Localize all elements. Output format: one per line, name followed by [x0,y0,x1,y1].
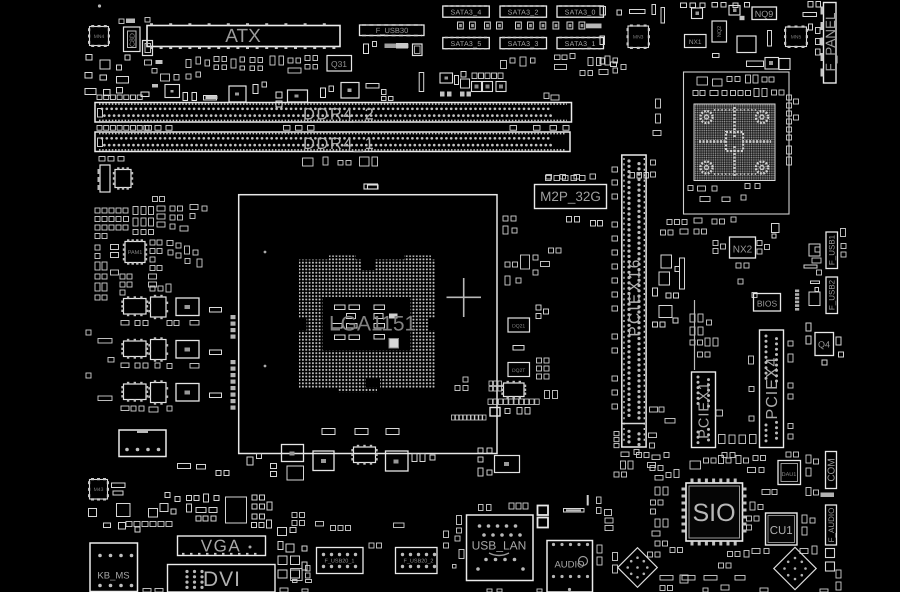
svg-text:Q31: Q31 [331,59,347,69]
svg-text:SIO: SIO [692,499,735,527]
svg-text:DAU1: DAU1 [782,472,797,478]
svg-text:NQ2: NQ2 [717,26,723,37]
svg-text:PCIEX4: PCIEX4 [764,357,781,420]
svg-text:NX2: NX2 [733,245,753,256]
svg-text:DQ2T: DQ2T [512,368,525,374]
svg-text:SATA3_1: SATA3_1 [565,41,596,48]
svg-text:M2P_32G: M2P_32G [540,189,601,204]
svg-text:Q4: Q4 [818,340,830,350]
svg-text:PCIEX16: PCIEX16 [627,257,644,336]
svg-text:F_USB30: F_USB30 [376,26,409,35]
svg-text:USB_LAN: USB_LAN [472,539,527,553]
svg-text:DDR4_1: DDR4_1 [303,135,375,153]
svg-text:F_USB20_2: F_USB20_2 [404,559,434,565]
svg-text:F_USB2: F_USB2 [827,279,836,310]
svg-text:F_AUDIO: F_AUDIO [827,508,836,543]
svg-text:SATA3_2: SATA3_2 [508,10,539,17]
svg-text:M43: M43 [94,487,104,493]
svg-text:SATA3_0: SATA3_0 [565,10,596,17]
svg-text:LGA1151: LGA1151 [329,313,416,336]
svg-text:SATA3_5: SATA3_5 [450,41,481,48]
svg-text:PAM1: PAM1 [128,250,143,256]
svg-text:KB_MS: KB_MS [97,571,129,582]
svg-text:VGA: VGA [201,537,241,556]
svg-text:CU1: CU1 [770,525,793,537]
svg-text:SATA3_4: SATA3_4 [450,10,481,17]
svg-text:COM: COM [827,458,838,481]
svg-text:F_PANEL: F_PANEL [823,12,838,72]
svg-text:NX1: NX1 [689,39,702,46]
svg-text:DQ21: DQ21 [512,324,525,330]
svg-text:SATA3_3: SATA3_3 [508,41,539,48]
svg-text:BIOS: BIOS [757,299,778,309]
svg-text:DDR4_2: DDR4_2 [303,106,375,124]
svg-text:MN3: MN3 [633,35,644,41]
svg-text:F_USB20_1: F_USB20_1 [325,559,355,565]
svg-text:NQ9: NQ9 [755,9,774,19]
svg-text:ATX: ATX [225,26,261,47]
svg-text:MN4: MN4 [94,34,105,40]
svg-text:MN5: MN5 [791,35,802,41]
svg-text:PCIEX1: PCIEX1 [697,381,713,439]
svg-text:DVI: DVI [203,568,241,591]
svg-text:F_USB1: F_USB1 [827,234,836,265]
svg-text:C8D: C8D [129,33,136,47]
